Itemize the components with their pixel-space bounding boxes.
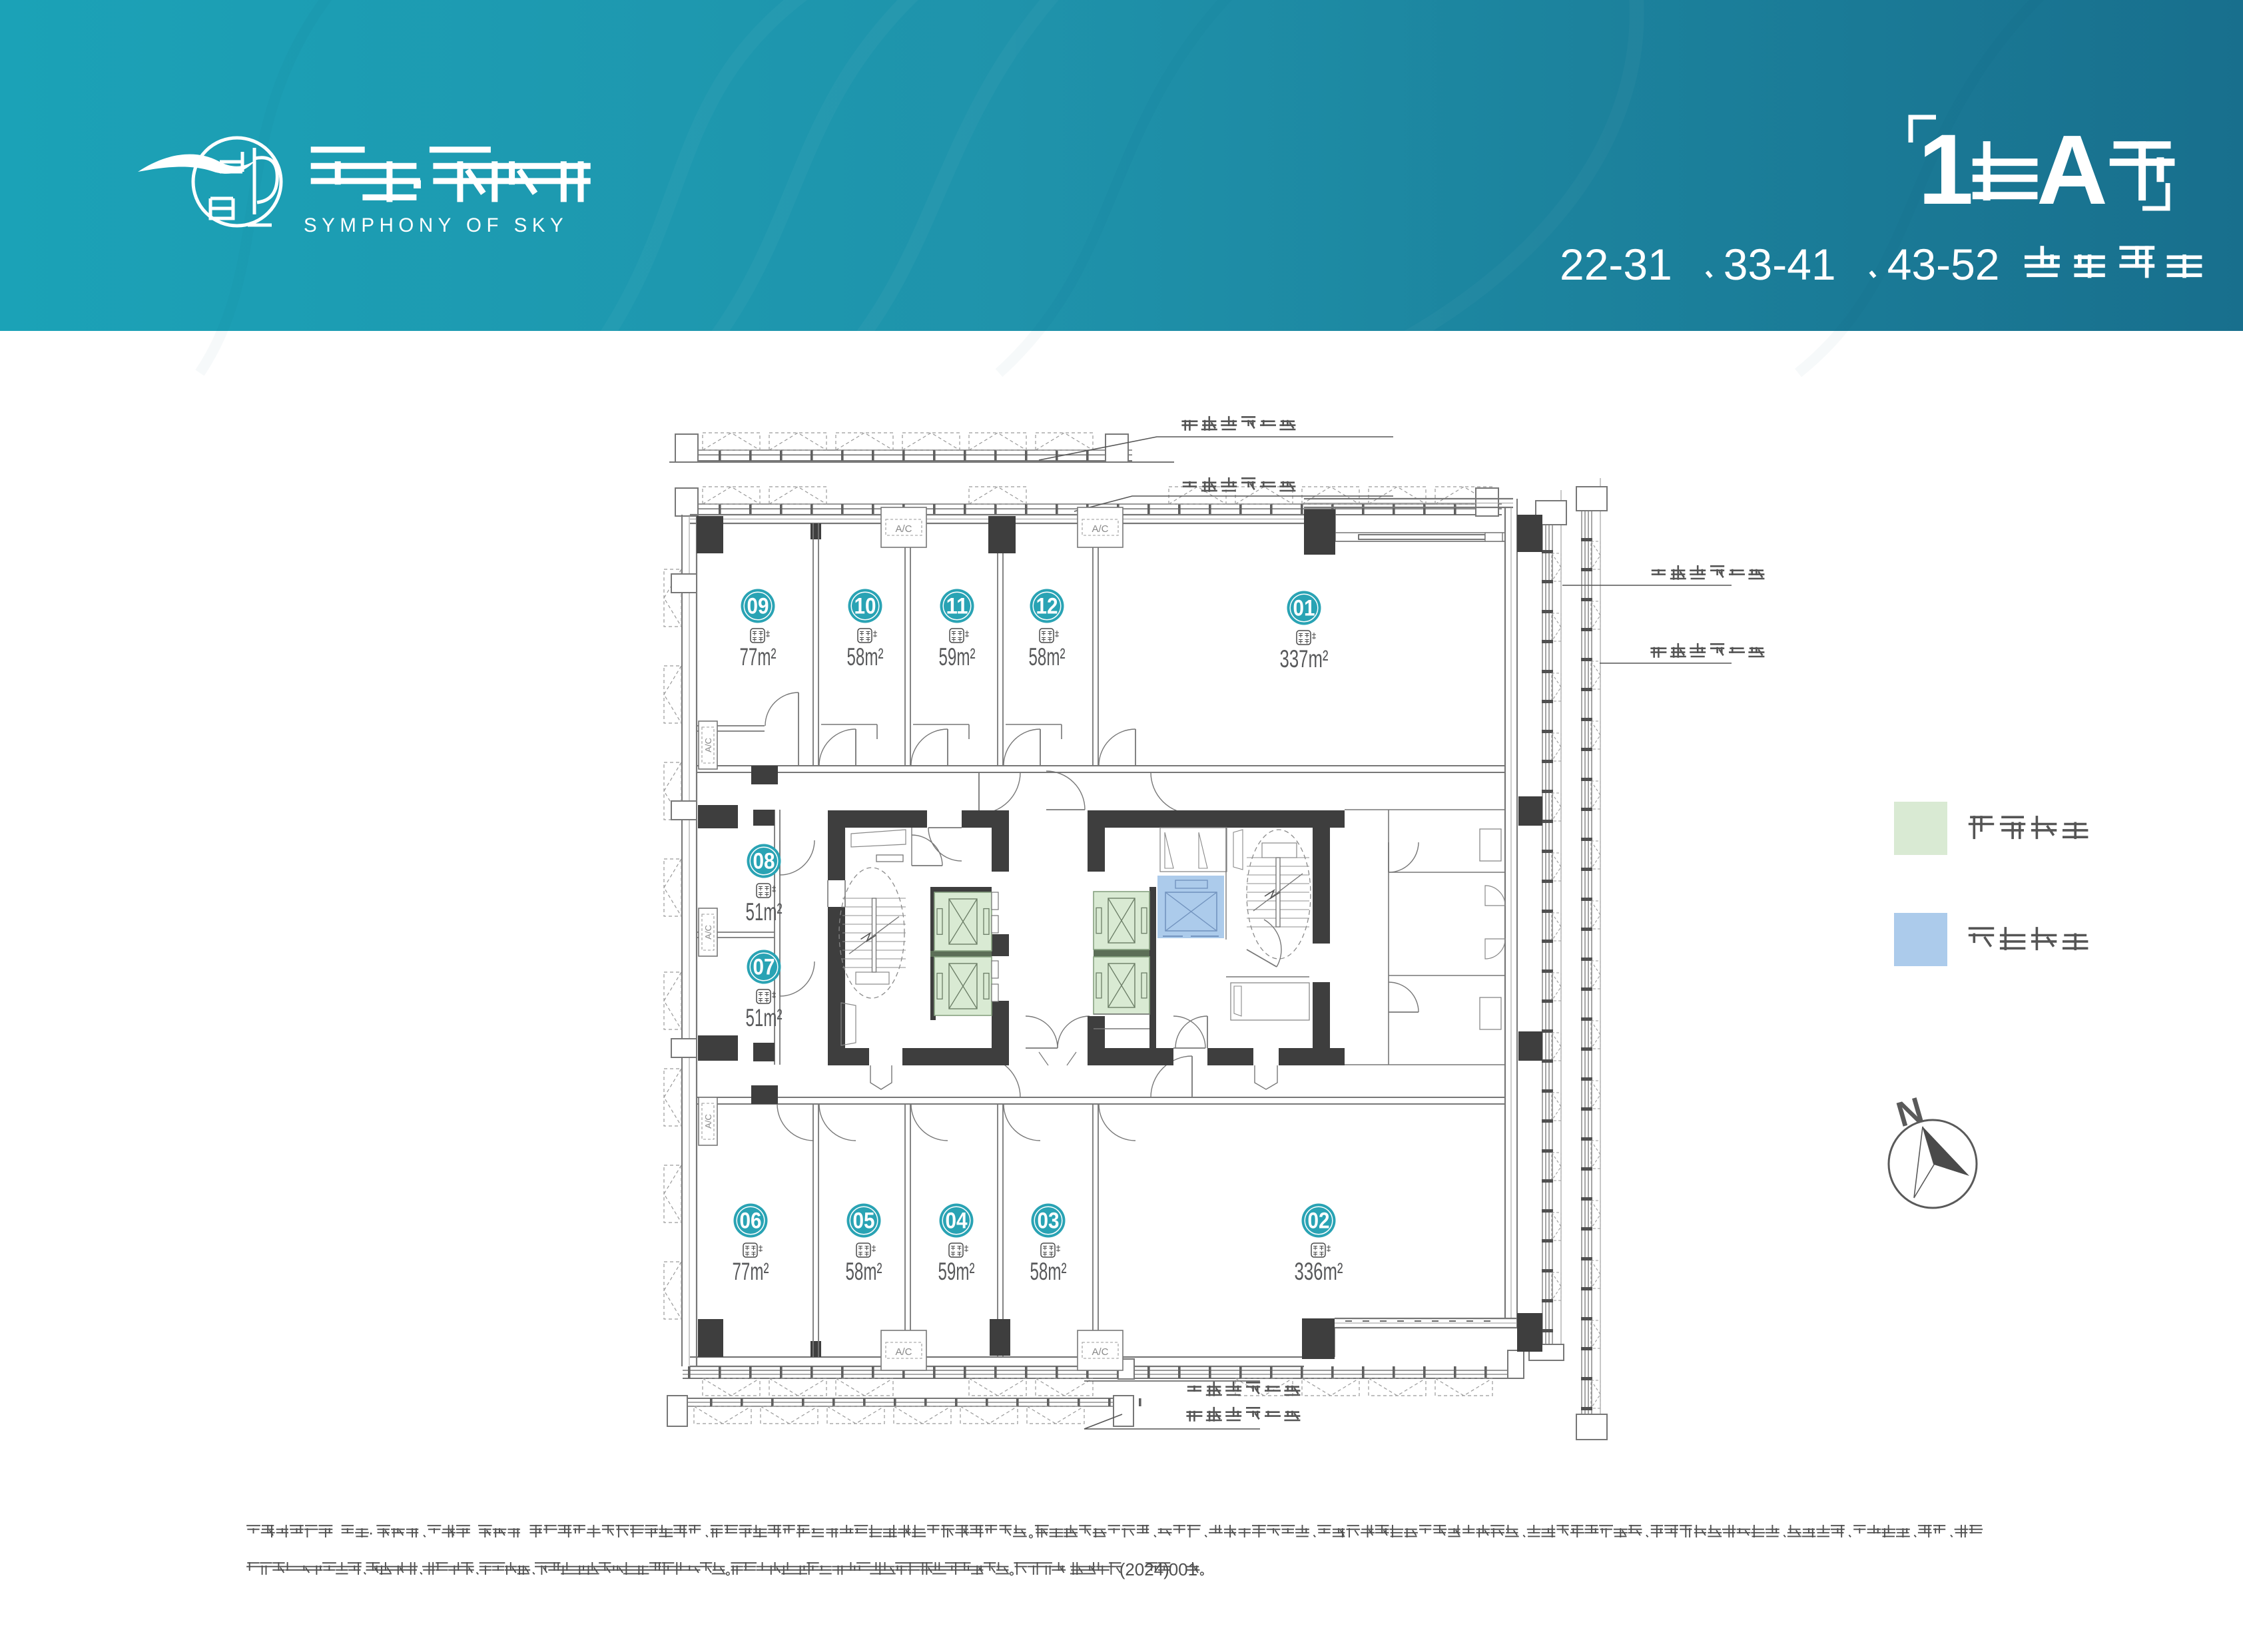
svg-text:59m²: 59m² xyxy=(939,643,976,671)
svg-text:77m²: 77m² xyxy=(733,1258,769,1285)
svg-text:03: 03 xyxy=(1038,1209,1060,1234)
svg-text:09: 09 xyxy=(747,594,769,619)
svg-text:A/C: A/C xyxy=(1092,1346,1108,1358)
svg-text:12: 12 xyxy=(1036,594,1058,619)
svg-text:A/C: A/C xyxy=(895,523,912,535)
svg-text:58m²: 58m² xyxy=(846,1258,882,1285)
svg-text:A/C: A/C xyxy=(703,925,713,940)
svg-text:43-52: 43-52 xyxy=(1887,240,2000,289)
svg-text:337m²: 337m² xyxy=(1280,645,1329,673)
svg-text:51m²: 51m² xyxy=(746,898,783,926)
svg-text:A: A xyxy=(2037,115,2108,225)
svg-text:01: 01 xyxy=(1293,596,1315,621)
svg-text:06: 06 xyxy=(740,1209,762,1234)
svg-text:A/C: A/C xyxy=(1092,523,1108,535)
svg-text:11: 11 xyxy=(946,594,968,619)
svg-text:58m²: 58m² xyxy=(1029,643,1066,671)
svg-text:58m²: 58m² xyxy=(847,643,884,671)
svg-text:A/C: A/C xyxy=(895,1346,912,1358)
svg-text:58m²: 58m² xyxy=(1030,1258,1067,1285)
svg-text:05: 05 xyxy=(853,1209,875,1234)
svg-text:22-31: 22-31 xyxy=(1560,240,1672,289)
svg-text:07: 07 xyxy=(753,955,775,980)
svg-text:51m²: 51m² xyxy=(746,1004,783,1031)
svg-text:A/C: A/C xyxy=(703,738,713,752)
svg-text:08: 08 xyxy=(753,849,775,874)
svg-text:10: 10 xyxy=(854,594,876,619)
svg-text:SYMPHONY OF SKY: SYMPHONY OF SKY xyxy=(304,214,568,236)
svg-text:02: 02 xyxy=(1308,1209,1330,1234)
svg-text:04: 04 xyxy=(946,1209,968,1234)
svg-text:59m²: 59m² xyxy=(938,1258,975,1285)
svg-text:1: 1 xyxy=(1918,113,1973,225)
svg-text:77m²: 77m² xyxy=(740,643,777,671)
svg-text:·: · xyxy=(368,1522,374,1542)
svg-text:33-41: 33-41 xyxy=(1724,240,1836,289)
svg-text:A/C: A/C xyxy=(703,1114,713,1129)
svg-text:336m²: 336m² xyxy=(1295,1258,1343,1285)
